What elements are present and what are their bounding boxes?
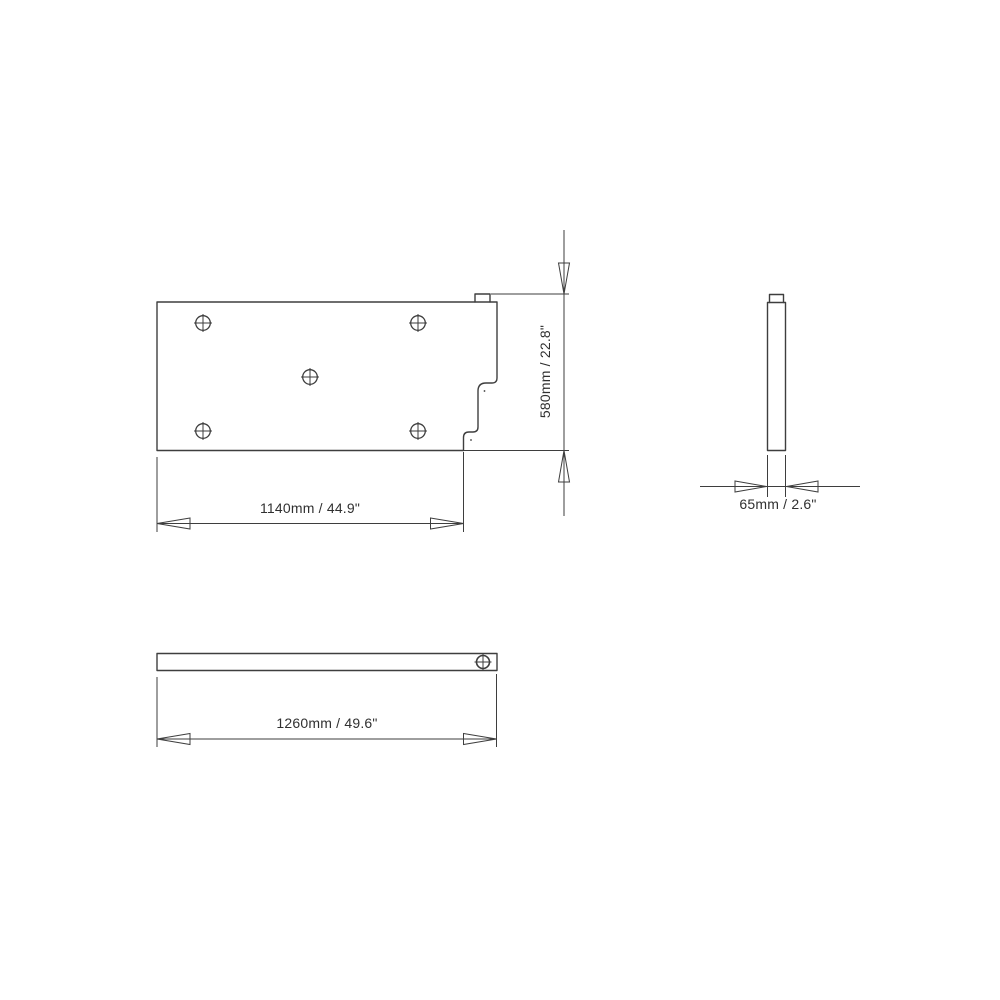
side-view: 65mm / 2.6" <box>700 295 860 513</box>
top-view: 1260mm / 49.6" <box>157 654 497 748</box>
dimension-label-side-thickness: 65mm / 2.6" <box>739 496 816 512</box>
dimension-label-front-height: 580mm / 22.8" <box>537 325 553 418</box>
arc-center-mark <box>470 439 472 441</box>
mounting-hole <box>409 314 427 332</box>
dimension-label-front-width: 1140mm / 44.9" <box>260 500 360 516</box>
dimension-label-top-width: 1260mm / 49.6" <box>276 715 377 731</box>
dimension-front-height: 580mm / 22.8" <box>464 230 570 516</box>
technical-drawing: 1140mm / 44.9" 580mm / 22.8" 65mm / 2.6" <box>0 0 1000 1000</box>
top-profile <box>157 654 497 671</box>
mounting-hole <box>194 314 212 332</box>
mounting-hole <box>194 422 212 440</box>
dimension-side-thickness: 65mm / 2.6" <box>700 455 860 512</box>
side-tab <box>770 295 784 303</box>
technical-drawing-canvas: 1140mm / 44.9" 580mm / 22.8" 65mm / 2.6" <box>0 0 1000 1000</box>
mounting-hole <box>301 368 319 386</box>
arc-center-mark <box>484 390 486 392</box>
plate-outline <box>157 302 497 451</box>
mounting-hole <box>475 654 492 671</box>
dimension-top-width: 1260mm / 49.6" <box>157 674 497 747</box>
mounting-hole <box>409 422 427 440</box>
mounting-tab <box>475 294 490 302</box>
front-view: 1140mm / 44.9" 580mm / 22.8" <box>157 230 570 532</box>
dimension-front-width: 1140mm / 44.9" <box>157 452 464 532</box>
side-profile <box>768 303 786 451</box>
